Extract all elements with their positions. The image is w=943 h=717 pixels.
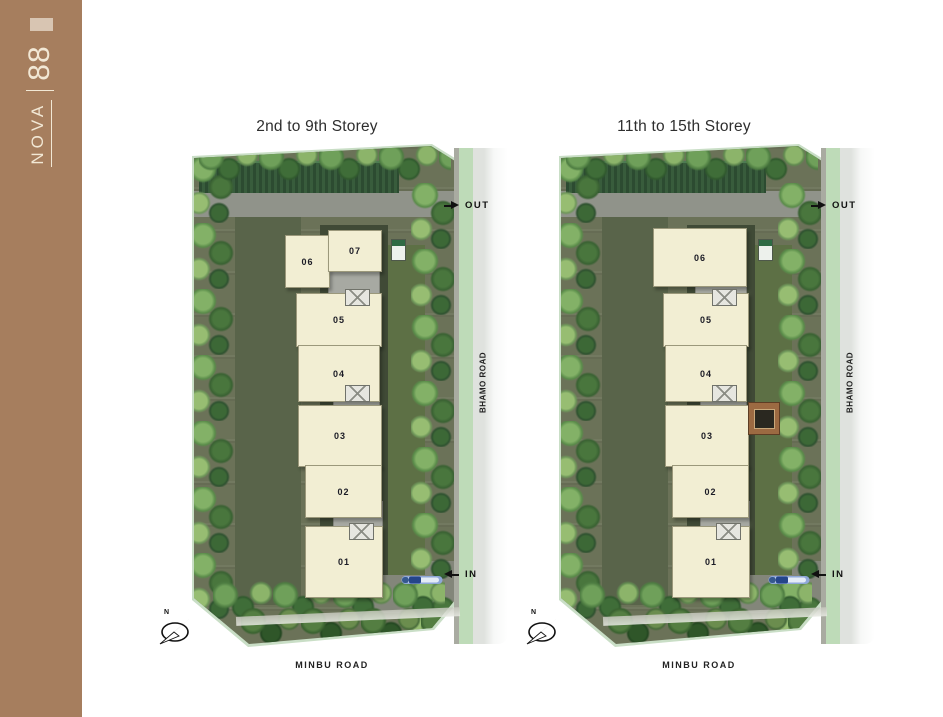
- unit-number-label: 02: [704, 487, 716, 497]
- minbu-road-label: MINBU ROAD: [222, 660, 442, 670]
- arrow-right-icon: [811, 201, 826, 210]
- in-label: IN: [832, 569, 845, 580]
- unit-number-label: 03: [701, 431, 713, 441]
- out-label: OUT: [465, 200, 490, 211]
- unit-number-label: 07: [349, 246, 361, 256]
- unit-number-label: 05: [700, 315, 712, 325]
- unit-number-label: 06: [301, 257, 313, 267]
- arrow-left-icon: [811, 570, 826, 579]
- exit-marker: OUT: [444, 200, 490, 211]
- utility-box-icon: [758, 239, 773, 261]
- lift-shaft-icon: [345, 289, 370, 306]
- out-label: OUT: [832, 200, 857, 211]
- brand-name-text: NOVA: [28, 100, 52, 167]
- site-ground: 060504030201: [552, 145, 822, 644]
- lift-shaft-icon: [712, 385, 737, 402]
- site-boundary: 06070504030201: [182, 142, 458, 647]
- unit-06: 06: [653, 228, 747, 287]
- unit-02: 02: [305, 465, 382, 518]
- unit-number-label: 02: [337, 487, 349, 497]
- units-layer: 060504030201: [552, 145, 822, 644]
- entry-marker: IN: [811, 569, 845, 580]
- in-label: IN: [465, 569, 478, 580]
- entry-marker: IN: [444, 569, 478, 580]
- unit-06: 06: [285, 235, 330, 288]
- unit-number-label: 04: [333, 369, 345, 379]
- unit-number-label: 01: [338, 557, 350, 567]
- units-layer: 06070504030201: [185, 145, 455, 644]
- lift-shaft-icon: [716, 523, 741, 540]
- lift-shaft-icon: [712, 289, 737, 306]
- site-plan-11th-15th: 11th to 15th Storey 060504030201: [539, 112, 879, 697]
- site-plan-2nd-9th: 2nd to 9th Storey 06070504030201: [172, 112, 512, 697]
- compass-n-label: N: [531, 609, 536, 616]
- plan-title: 2nd to 9th Storey: [177, 118, 457, 136]
- unit-07: 07: [328, 230, 382, 272]
- brand-number-text: 88: [23, 45, 57, 80]
- bhamo-road-label: BHAMO ROAD: [479, 348, 488, 418]
- brand-logo: NOVA 88: [18, 31, 62, 181]
- unit-03: 03: [298, 405, 382, 467]
- lift-shaft-icon: [345, 385, 370, 402]
- north-compass-icon: N: [156, 614, 192, 646]
- plan-title: 11th to 15th Storey: [544, 118, 824, 136]
- lift-shaft-icon: [349, 523, 374, 540]
- brand-divider: [26, 90, 54, 91]
- unit-number-label: 03: [334, 431, 346, 441]
- unit-number-label: 06: [694, 253, 706, 263]
- arrow-right-icon: [444, 201, 459, 210]
- arrow-left-icon: [444, 570, 459, 579]
- bhamo-road-label: BHAMO ROAD: [846, 348, 855, 418]
- brochure-page: NOVA 88 2nd to 9th Storey 06070504030201: [0, 0, 943, 717]
- unit-03: 03: [665, 405, 749, 467]
- minbu-road-label: MINBU ROAD: [589, 660, 809, 670]
- unit-02: 02: [672, 465, 749, 518]
- car-icon: [768, 572, 810, 587]
- north-compass-icon: N: [523, 614, 559, 646]
- unit-number-label: 05: [333, 315, 345, 325]
- site-ground: 06070504030201: [185, 145, 455, 644]
- frame-marker-icon: [748, 402, 780, 435]
- utility-box-icon: [391, 239, 406, 261]
- unit-number-label: 04: [700, 369, 712, 379]
- site-boundary: 060504030201: [549, 142, 825, 647]
- exit-marker: OUT: [811, 200, 857, 211]
- brand-logo-block: [30, 18, 53, 31]
- compass-n-label: N: [164, 609, 169, 616]
- unit-number-label: 01: [705, 557, 717, 567]
- brand-sidebar: NOVA 88: [0, 0, 82, 717]
- car-icon: [401, 572, 443, 587]
